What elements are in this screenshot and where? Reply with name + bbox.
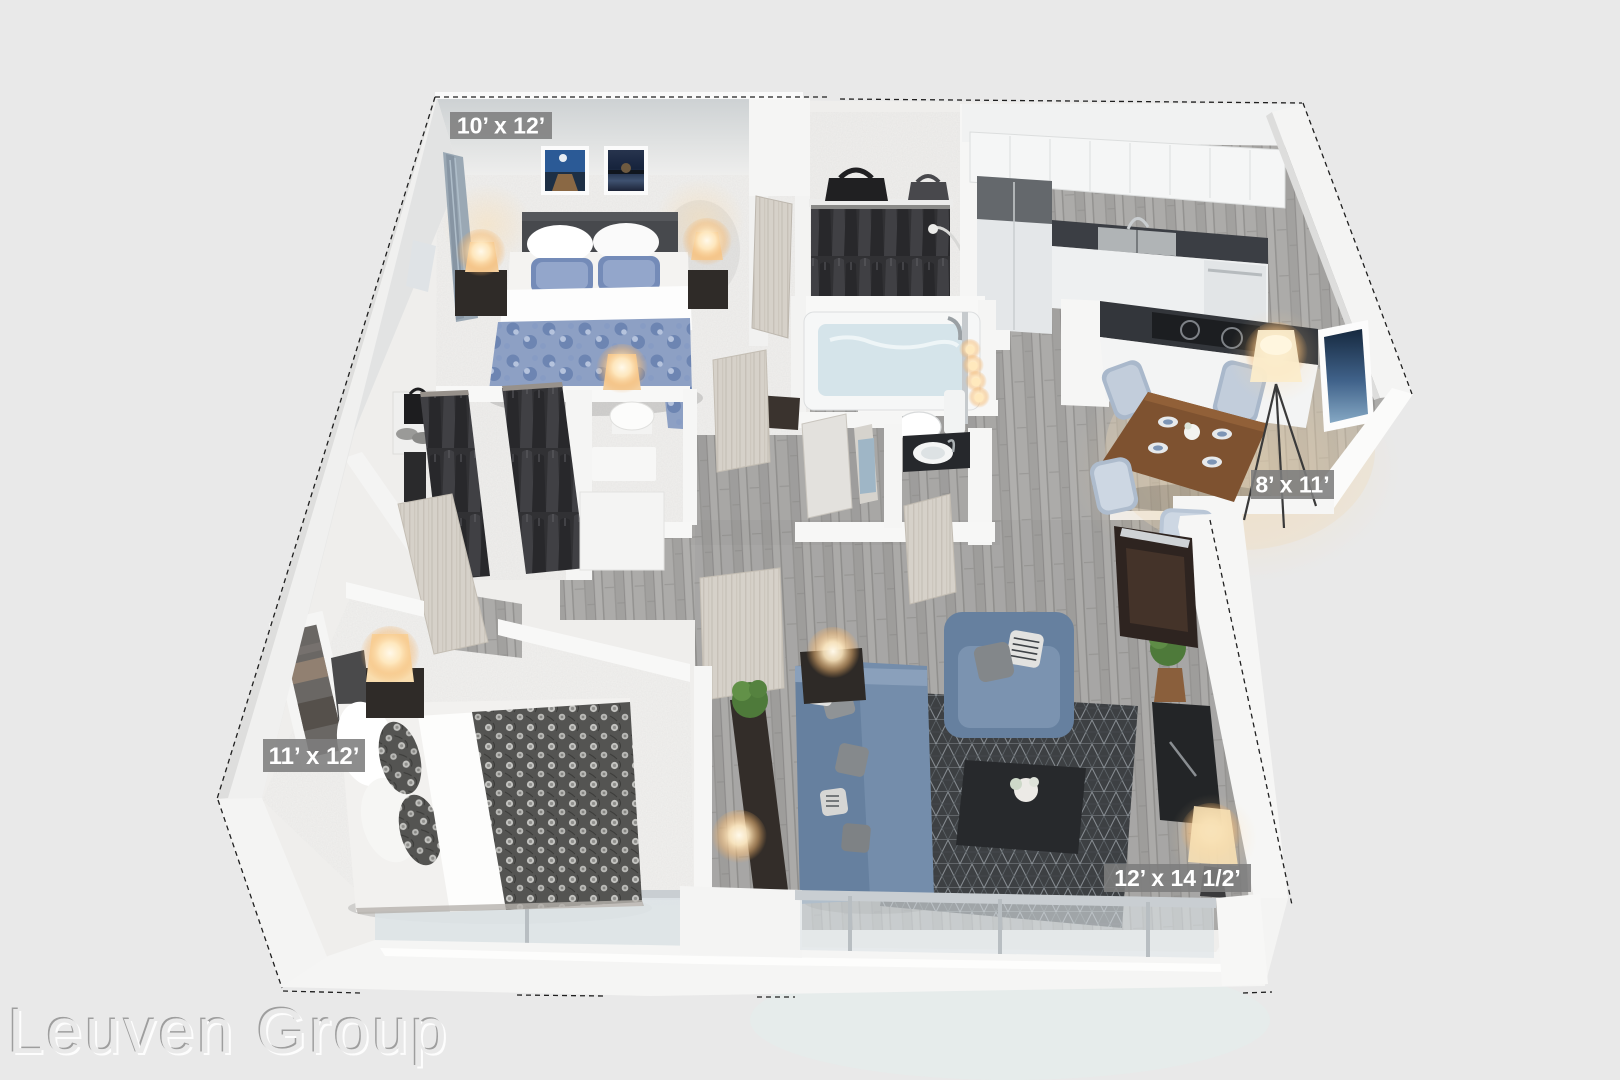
svg-text:12’ x 14 1/2’: 12’ x 14 1/2’ bbox=[1114, 865, 1241, 891]
svg-text:Leuven Group: Leuven Group bbox=[8, 995, 450, 1067]
svg-text:8’ x 11’: 8’ x 11’ bbox=[1255, 472, 1329, 498]
svg-text:10’ x 12’: 10’ x 12’ bbox=[457, 113, 545, 139]
svg-text:11’ x 12’: 11’ x 12’ bbox=[269, 743, 360, 770]
